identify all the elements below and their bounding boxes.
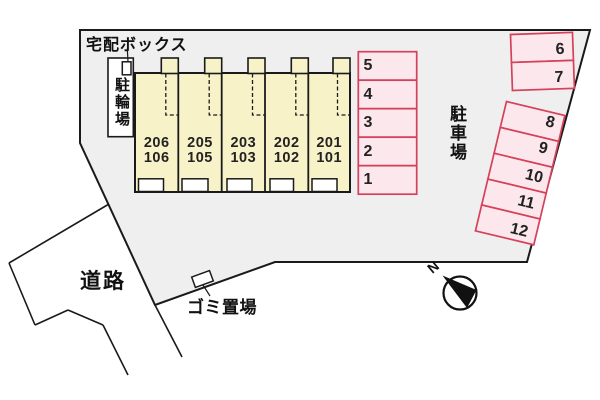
unit-label: 206 106	[134, 136, 180, 165]
unit-label: 201 101	[306, 136, 352, 165]
stall-number: 6	[548, 39, 571, 62]
bicycle-parking-label: 駐輪場	[111, 77, 132, 128]
stall-number: 5	[357, 55, 379, 77]
building-notch	[248, 58, 265, 74]
building-notch	[291, 58, 308, 74]
compass-icon	[443, 276, 477, 310]
unit-label: 205 105	[177, 136, 223, 165]
building	[135, 58, 350, 192]
road-label: 道路	[80, 265, 126, 295]
unit-label: 202 102	[264, 136, 310, 165]
parking-lot-label: 駐車場	[444, 105, 469, 162]
garbage-area-label: ゴミ置場	[187, 293, 257, 318]
stall-number: 3	[357, 112, 379, 134]
site-plan-drawing	[0, 0, 600, 400]
site-plan: 宅配ボックス 駐輪場 駐車場 道路 ゴミ置場 N 206 106 205 105…	[0, 0, 600, 400]
building-notch	[333, 58, 350, 74]
building-notch	[205, 58, 222, 74]
stall-number: 1	[357, 169, 379, 191]
unit-label: 203 103	[220, 136, 266, 165]
stall-number: 10	[520, 163, 547, 190]
stall-number: 2	[357, 141, 379, 163]
delivery-box-label: 宅配ボックス	[86, 31, 188, 55]
stall-number: 4	[357, 84, 379, 106]
delivery-box	[122, 62, 131, 75]
stall-number: 7	[547, 67, 570, 90]
building-notch	[161, 58, 178, 74]
